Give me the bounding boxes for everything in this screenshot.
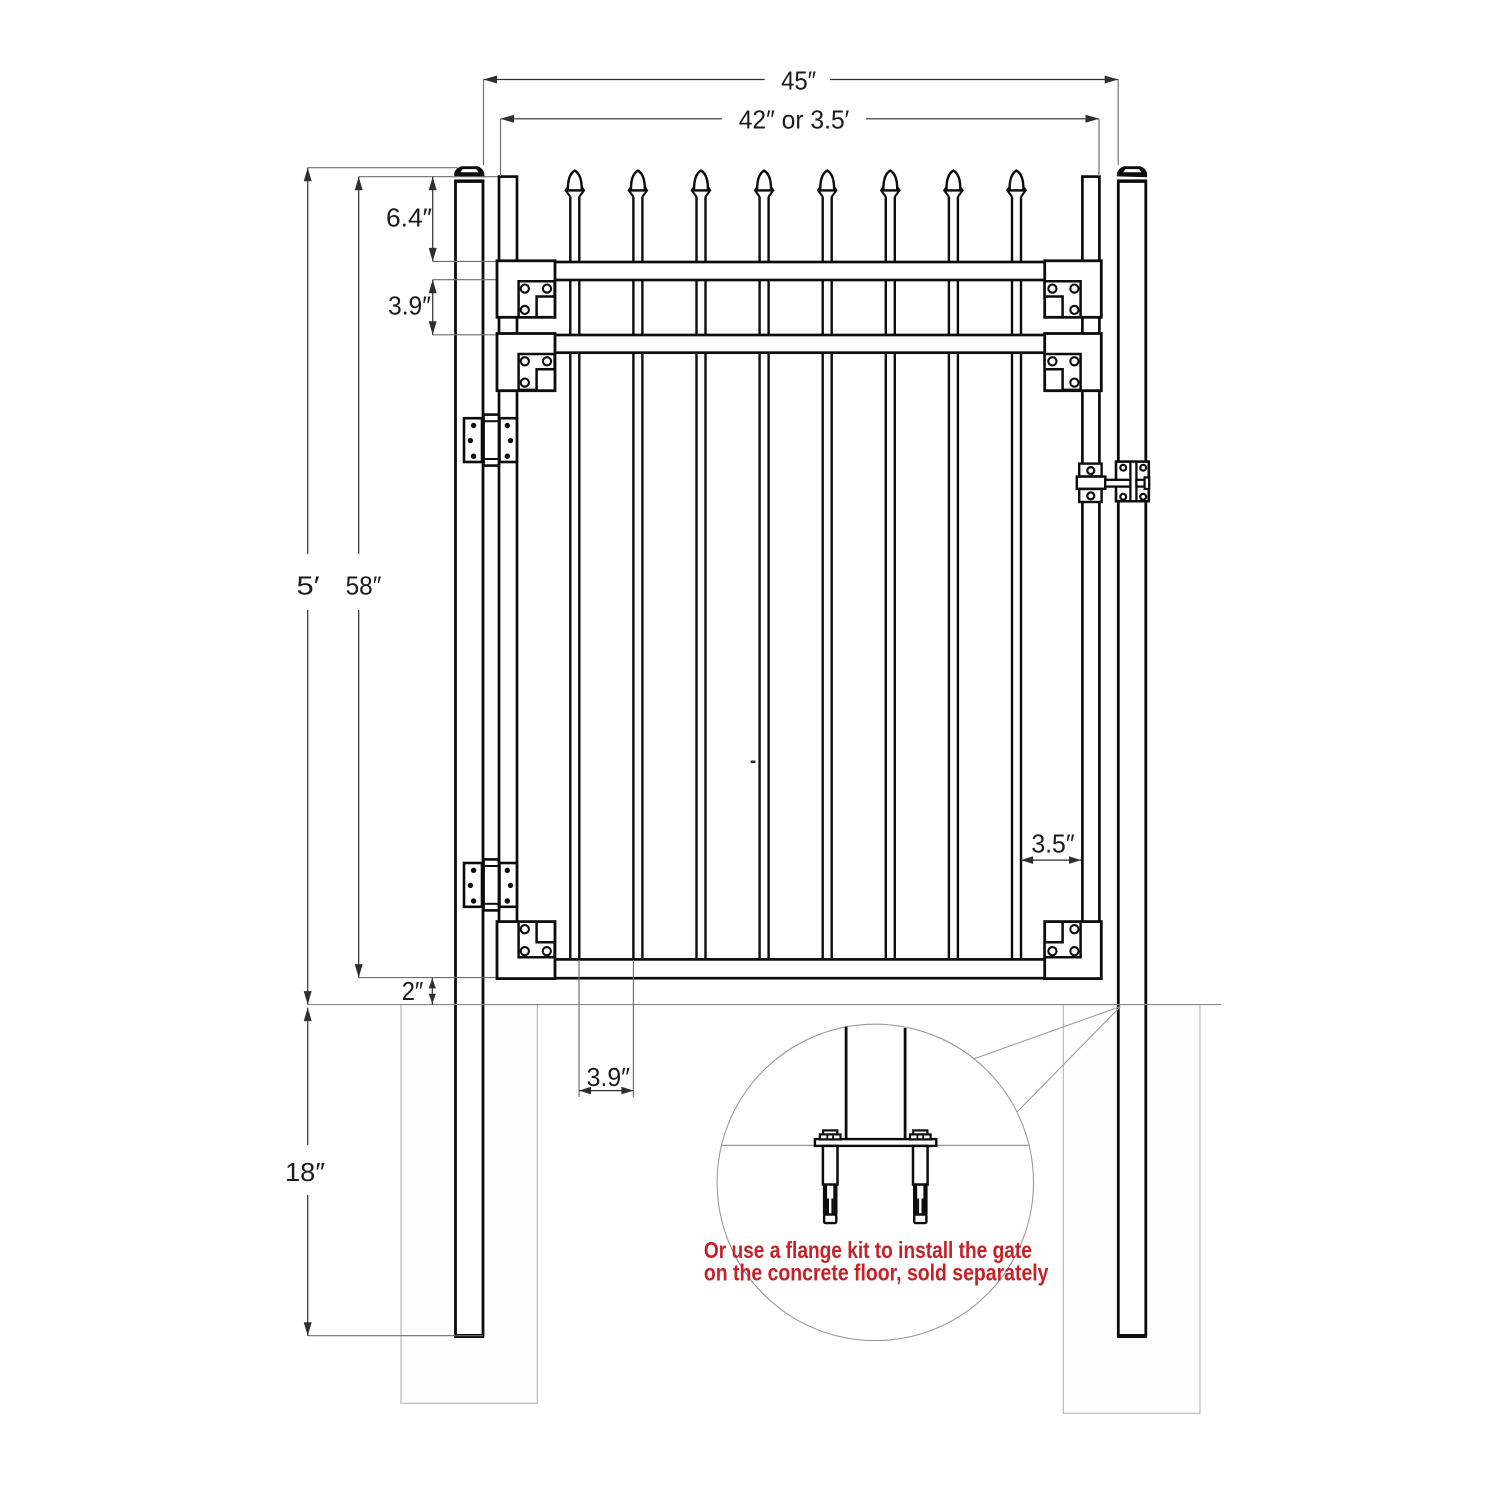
svg-text:3.9″: 3.9″ [388, 290, 431, 320]
svg-text:42″ or 3.5′: 42″ or 3.5′ [739, 105, 850, 135]
svg-text:2″: 2″ [402, 976, 424, 1006]
svg-text:3.5″: 3.5″ [1031, 829, 1074, 859]
svg-text:on the concrete floor, sold se: on the concrete floor, sold separately [704, 1260, 1049, 1286]
svg-text:6.4″: 6.4″ [386, 203, 432, 233]
svg-text:58″: 58″ [346, 570, 382, 600]
svg-text:3.9″: 3.9″ [587, 1062, 630, 1092]
svg-text:18″: 18″ [285, 1157, 325, 1187]
svg-text:5′: 5′ [297, 570, 320, 600]
svg-text:45″: 45″ [781, 65, 816, 95]
